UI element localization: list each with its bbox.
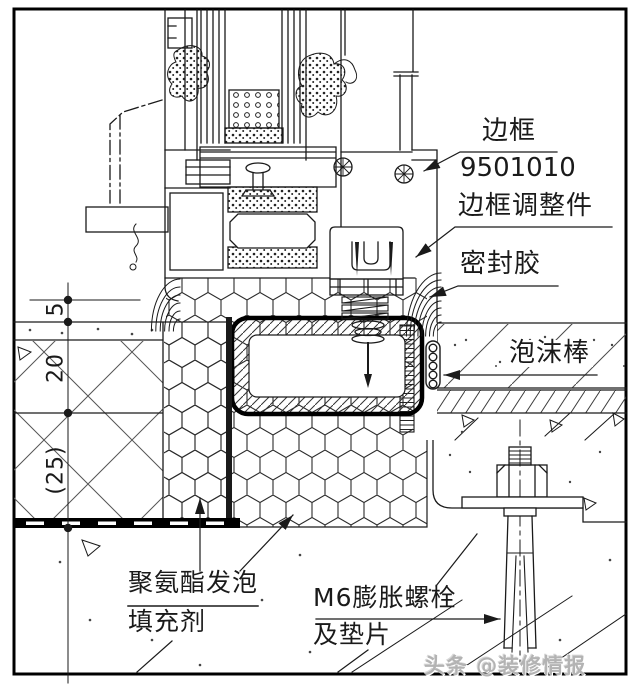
label-foam-backer-rod: 泡沫棒 bbox=[506, 340, 593, 367]
steel-reinforcement-tube bbox=[232, 318, 422, 414]
cad-detail-page: 边框 9501010 边框调整件 密封胶 泡沫棒 聚氨酯发泡 填充剂 M6膨胀螺… bbox=[0, 0, 640, 690]
label-sealant: 密封胶 bbox=[460, 251, 541, 278]
label-pu-foam-line1: 聚氨酯发泡 bbox=[128, 570, 258, 596]
dim-5: 5 bbox=[44, 302, 69, 317]
label-frame-adjuster: 边框调整件 bbox=[458, 193, 593, 220]
foam-backer-rod bbox=[426, 341, 440, 389]
label-pu-foam-line2: 填充剂 bbox=[128, 609, 206, 635]
label-frame: 边框 bbox=[482, 118, 536, 145]
dim-25: (25) bbox=[44, 445, 69, 494]
label-expansion-bolt-line1: M6膨胀螺栓 bbox=[313, 585, 456, 611]
label-frame-code: 9501010 bbox=[460, 155, 576, 182]
watermark: 头条 @装修情报 bbox=[424, 650, 586, 680]
label-expansion-bolt-line2: 及垫片 bbox=[313, 622, 391, 648]
dim-20: 20 bbox=[44, 353, 69, 383]
